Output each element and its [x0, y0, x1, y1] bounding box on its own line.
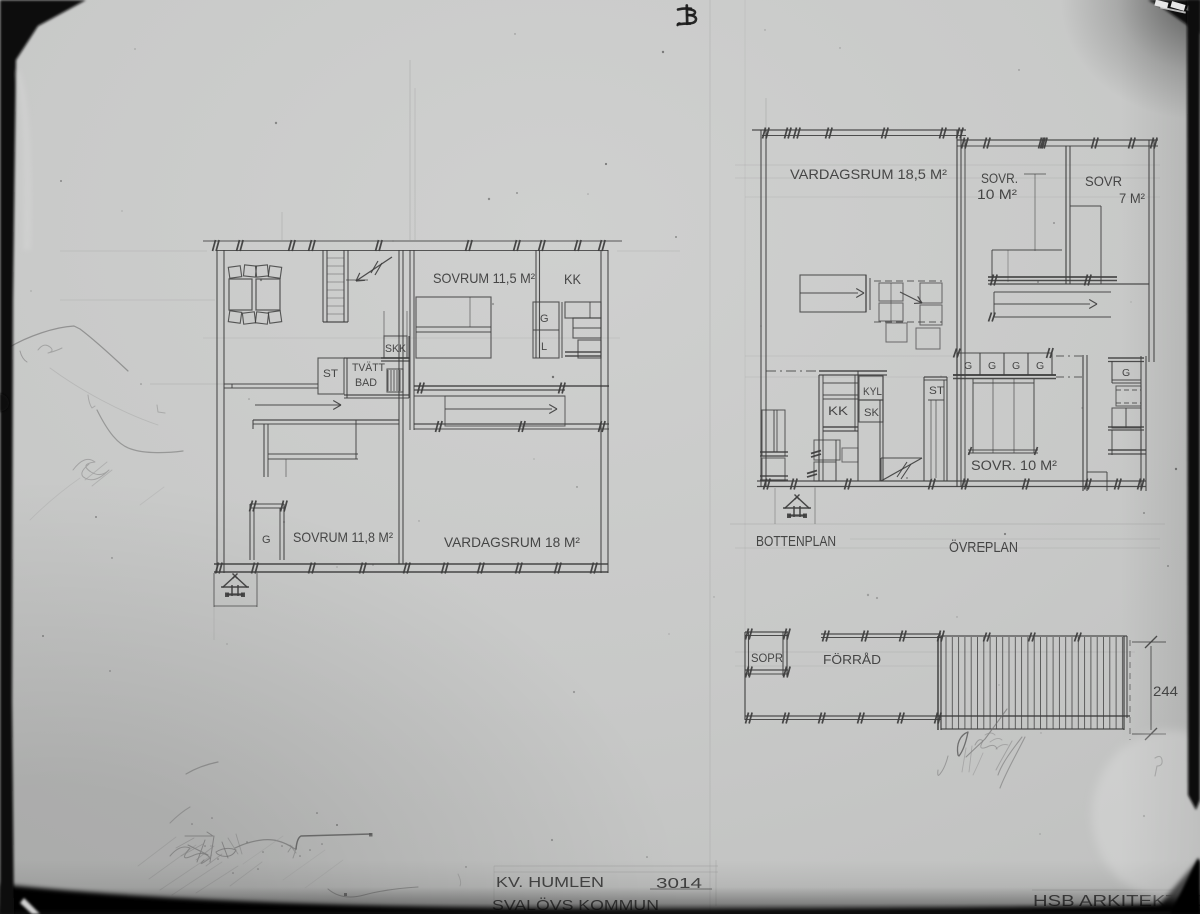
svg-text:SOVR: SOVR	[1085, 174, 1122, 189]
svg-text:G: G	[964, 360, 972, 372]
svg-text:SK: SK	[864, 407, 880, 419]
svg-text:TVÄTT: TVÄTT	[352, 362, 385, 374]
svg-text:BOTTENPLAN: BOTTENPLAN	[756, 534, 836, 550]
svg-text:VARDAGSRUM 18 M²: VARDAGSRUM 18 M²	[444, 534, 580, 550]
svg-text:ÖVREPLAN: ÖVREPLAN	[949, 538, 1018, 556]
svg-text:KK: KK	[564, 271, 582, 287]
svg-text:L: L	[541, 341, 547, 353]
svg-text:SOVR.: SOVR.	[981, 171, 1018, 186]
svg-text:SOPR: SOPR	[751, 651, 783, 665]
svg-text:KK: KK	[828, 404, 848, 418]
svg-text:G: G	[262, 534, 271, 546]
svg-text:SOVR. 10 M²: SOVR. 10 M²	[971, 458, 1058, 473]
svg-text:G: G	[988, 360, 996, 372]
svg-text:G: G	[540, 313, 549, 325]
svg-text:10 M²: 10 M²	[977, 187, 1018, 202]
svg-text:7 M²: 7 M²	[1119, 191, 1145, 206]
svg-text:SKK: SKK	[385, 343, 407, 355]
svg-text:VARDAGSRUM 18,5 M²: VARDAGSRUM 18,5 M²	[790, 166, 947, 182]
svg-text:244: 244	[1153, 684, 1179, 699]
svg-text:SOVRUM 11,5 M²: SOVRUM 11,5 M²	[433, 270, 535, 286]
svg-text:SOVRUM 11,8 M²: SOVRUM 11,8 M²	[293, 529, 393, 545]
svg-text:FÖRRÅD: FÖRRÅD	[823, 652, 881, 667]
svg-text:KYL: KYL	[863, 386, 882, 398]
svg-text:BAD: BAD	[355, 377, 377, 389]
svg-text:G: G	[1012, 360, 1020, 372]
svg-text:ST: ST	[323, 368, 338, 380]
svg-text:ST: ST	[929, 385, 944, 397]
svg-text:G: G	[1122, 367, 1130, 379]
svg-text:G: G	[1036, 360, 1044, 372]
